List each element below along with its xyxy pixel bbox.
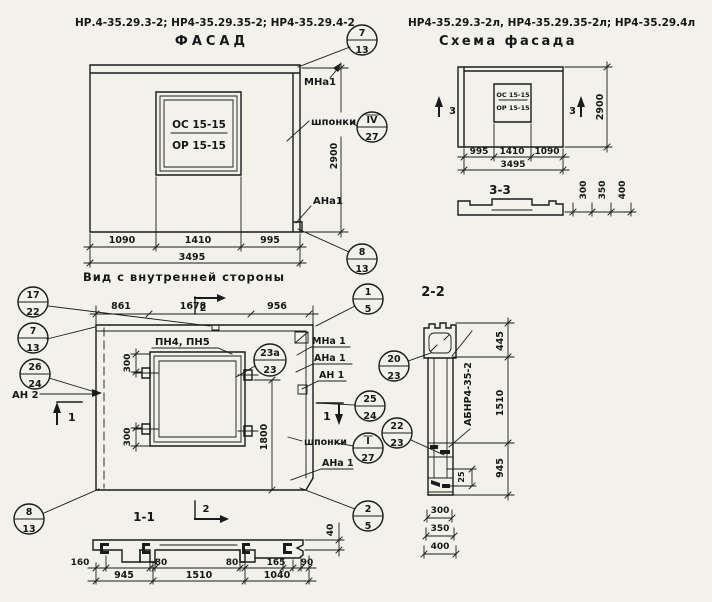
dim-1090: 1090	[109, 235, 136, 246]
callout-bottom: 22	[26, 307, 39, 318]
callout-bottom: 23	[263, 365, 276, 376]
callout-top: IV	[367, 115, 379, 126]
dim-3495: 3495	[500, 160, 525, 170]
callout-top: 8	[26, 507, 33, 518]
inner-window	[134, 352, 258, 446]
callout-7-13: 7 13	[298, 25, 377, 67]
dim-40: 40	[326, 524, 336, 537]
section-mark-label: 2	[200, 303, 207, 314]
schema-title: Схема фасада	[439, 34, 577, 49]
inner-view: 17 22 7 13 26 24 АН 2 1 861	[12, 284, 444, 535]
callout-bottom: 23	[387, 371, 400, 382]
part-mark-abnr4-35-2: АБНР4-35-2	[463, 362, 474, 426]
callout-bottom: 27	[361, 453, 374, 464]
callout-top: 2	[365, 504, 372, 515]
dim-945: 945	[114, 570, 134, 581]
facade-view: НР.4-35.29.3-2; НР4-35.29.35-2; НР4-35.2…	[75, 17, 387, 284]
dim-165: 165	[267, 558, 286, 568]
schema-window-mark-bottom: ОР 15-15	[496, 104, 530, 112]
label-shponki: шпонки	[311, 117, 356, 128]
facade-window-mark-bottom: ОР 15-15	[172, 140, 226, 152]
callout-top: 20	[387, 354, 401, 365]
section-mark-label: 3	[569, 106, 576, 117]
callout-top: 26	[28, 362, 42, 373]
dim-300: 300	[431, 506, 450, 516]
section-1-1-dims: 160 80 80 165 90 945 1510 1040	[71, 556, 316, 584]
dim-956: 956	[267, 301, 287, 312]
dim-2900: 2900	[329, 142, 340, 169]
dim-350: 350	[598, 181, 608, 200]
dim-1510: 1510	[495, 389, 506, 416]
callout-7-13-inner: 7 13	[18, 323, 95, 354]
anchor-arrow-icon	[333, 63, 341, 72]
facade-codes: НР.4-35.29.3-2; НР4-35.29.35-2; НР4-35.2…	[75, 17, 355, 29]
callout-8-13: 8 13	[298, 229, 377, 275]
section-mark-label: 2	[203, 504, 210, 515]
section-mark-2-bottom: 2	[195, 501, 229, 523]
callout-top: 25	[363, 394, 376, 405]
callout-20-23: 20 23	[379, 351, 431, 382]
label-ana1-inner-b: АНа 1	[322, 458, 354, 469]
dim-995: 995	[470, 147, 489, 157]
dim-25: 25	[457, 471, 466, 483]
callout-bottom: 27	[365, 132, 378, 143]
section-mark-3-left: 3	[435, 96, 456, 117]
facade-bottom-dims: 1090 1410 995 3495	[84, 177, 306, 267]
section-1-1-title: 1-1	[133, 510, 155, 524]
callout-26-24: 26 24	[20, 359, 95, 392]
callout-top: 22	[390, 421, 403, 432]
label-an2: АН 2	[12, 390, 39, 401]
section-mark-label: 3	[449, 106, 456, 117]
callout-bottom: 24	[363, 411, 377, 422]
dim-300b: 300	[123, 428, 133, 447]
label-ana1-inner-a: АНа 1	[314, 353, 346, 364]
facade-right-dims: 2900	[302, 63, 348, 237]
dim-445: 445	[495, 331, 506, 351]
dim-945: 945	[495, 458, 506, 478]
dim-1410: 1410	[499, 147, 524, 157]
dim-350: 350	[431, 524, 450, 534]
callout-bottom: 13	[26, 343, 39, 354]
dim-40-group: 40	[305, 523, 344, 556]
inner-view-caption: Вид с внутренней стороны	[83, 270, 285, 284]
section-2-2-title: 2-2	[421, 285, 445, 300]
callout-top: 1	[365, 287, 372, 298]
callout-bottom: 13	[355, 45, 368, 56]
section-2-2-bottom-dims: 300 350 400	[421, 506, 459, 558]
schema-codes: НР4-35.29.3-2л, НР4-35.29.35-2л; НР4-35.…	[408, 17, 695, 29]
dim-2900: 2900	[595, 93, 606, 120]
dim-1040: 1040	[264, 570, 291, 581]
schema-window-mark-top: ОС 15-15	[496, 91, 530, 99]
label-ana1: АНа1	[313, 196, 343, 207]
dim-160: 160	[71, 558, 90, 568]
dim-300a: 300	[123, 354, 133, 373]
callout-top: I	[366, 436, 370, 447]
panel-drawing: НР.4-35.29.3-2; НР4-35.29.35-2; НР4-35.2…	[0, 0, 712, 602]
dim-400: 400	[431, 542, 450, 552]
dim-3495: 3495	[179, 252, 205, 263]
anchor-arrow-icon	[92, 389, 102, 397]
callout-2-5: 2 5	[300, 488, 383, 532]
dim-1510: 1510	[186, 570, 213, 581]
label-pn4-pn5: ПН4, ПН5	[155, 337, 210, 348]
callout-top: 23а	[260, 348, 280, 359]
callout-top: 17	[26, 290, 39, 301]
dim-1410: 1410	[185, 235, 212, 246]
section-3-3-dims: 300 350 400	[565, 181, 636, 216]
dim-400: 400	[618, 181, 628, 200]
section-3-3: 3-3 300 350 400	[458, 181, 636, 216]
inner-1800-dim: 1800	[254, 377, 280, 493]
section-mark-label: 1	[323, 410, 331, 423]
dim-861: 861	[111, 301, 131, 312]
section-mark-3-right: 3	[569, 96, 585, 117]
dim-80b: 80	[226, 558, 239, 568]
callout-top: 8	[359, 247, 366, 258]
dim-80a: 80	[155, 558, 168, 568]
section-mark-1-left: 1	[53, 402, 82, 424]
dim-25-group: 25	[447, 466, 476, 489]
callout-bottom: 5	[365, 304, 372, 315]
section-mark-2-top: 2	[195, 294, 226, 314]
section-mark-1-right: 1	[317, 403, 343, 425]
callout-i-27: I 27	[353, 433, 383, 464]
callout-bottom: 13	[22, 524, 35, 535]
callout-bottom: 5	[365, 521, 372, 532]
label-mna1-inner: МНа 1	[312, 336, 346, 347]
dim-1090: 1090	[534, 147, 559, 157]
label-an1: АН 1	[319, 370, 344, 381]
dim-995: 995	[260, 235, 280, 246]
section-mark-label: 1	[68, 411, 76, 424]
facade-window-mark-top: ОС 15-15	[172, 119, 226, 131]
section-3-3-title: 3-3	[489, 183, 511, 197]
label-shponki-inner: шпонки	[304, 437, 347, 448]
dim-300: 300	[579, 181, 589, 200]
dim-90: 90	[301, 558, 314, 568]
dim-1800: 1800	[259, 423, 270, 450]
callout-top: 7	[359, 28, 366, 39]
callout-bottom: 13	[355, 264, 368, 275]
inner-panel-outline	[96, 325, 313, 490]
callout-bottom: 23	[390, 438, 403, 449]
section-1-1: 1-1 2 40 160 80 80 165 90 945 1	[71, 501, 344, 584]
callout-top: 7	[30, 326, 37, 337]
inner-300-dims: 300 300	[123, 349, 150, 451]
callout-bottom: 24	[28, 379, 42, 390]
callout-1-5: 1 5	[316, 284, 383, 326]
schema-bottom-dims: 995 1410 1090 3495	[458, 124, 569, 174]
drawing-sheet: НР.4-35.29.3-2; НР4-35.29.35-2; НР4-35.2…	[0, 0, 712, 602]
callout-22-23: 22 23	[382, 418, 444, 455]
callout-iv-27: IV 27	[357, 112, 387, 143]
facade-title: ФАСАД	[175, 34, 249, 49]
label-mna1: МНа1	[304, 77, 336, 88]
facade-schema-view: НР4-35.29.3-2л, НР4-35.29.35-2л; НР4-35.…	[408, 17, 695, 174]
callout-8-13-inner: 8 13	[14, 489, 99, 535]
